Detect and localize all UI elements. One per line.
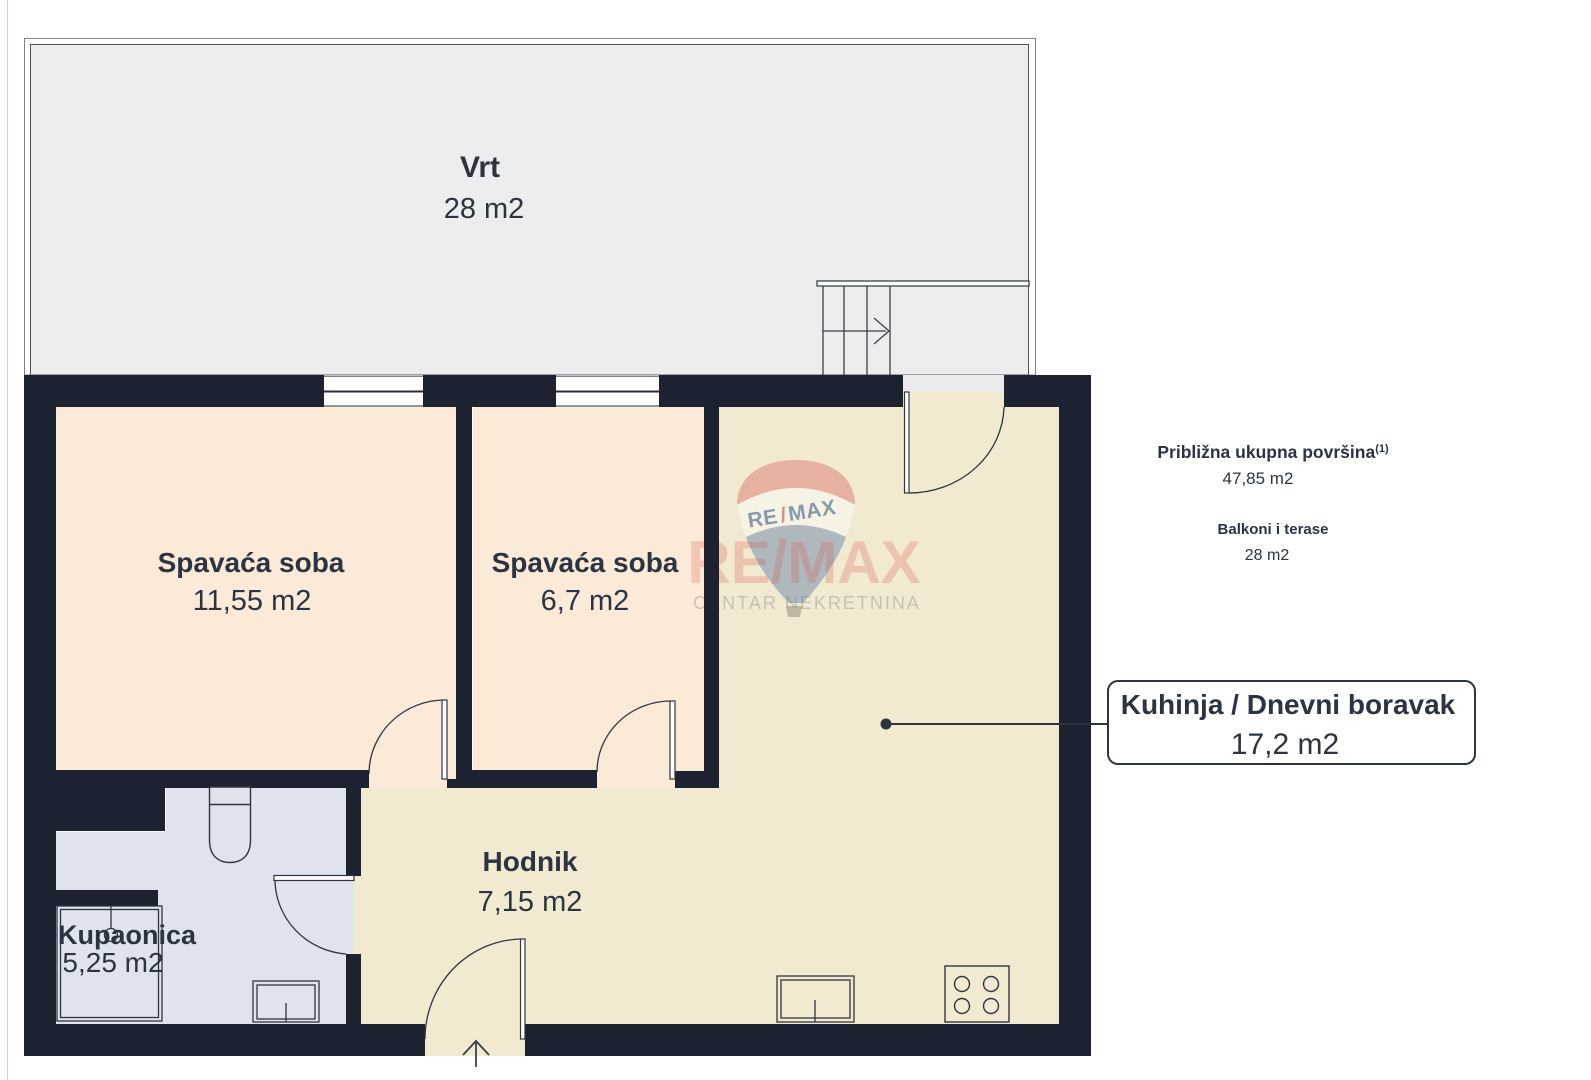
svg-text:Približna ukupna površina(1): Približna ukupna površina(1) [1157,442,1389,462]
svg-text:CENTAR NEKRETNINA: CENTAR NEKRETNINA [693,593,921,613]
svg-text:5,25 m2: 5,25 m2 [62,947,163,978]
svg-text:11,55 m2: 11,55 m2 [193,585,312,617]
svg-text:RE/MAX: RE/MAX [687,529,920,596]
svg-text:Spavaća soba: Spavaća soba [158,547,345,578]
svg-text:47,85 m2: 47,85 m2 [1223,469,1294,488]
svg-text:28 m2: 28 m2 [444,193,525,225]
svg-text:6,7 m2: 6,7 m2 [541,585,630,617]
svg-text:Vrt: Vrt [460,151,500,184]
svg-text:7,15 m2: 7,15 m2 [478,886,583,918]
svg-text:Hodnik: Hodnik [483,846,578,877]
svg-text:17,2 m2: 17,2 m2 [1231,728,1339,761]
svg-text:Kuhinja / Dnevni boravak: Kuhinja / Dnevni boravak [1121,689,1456,720]
svg-text:Balkoni i terase: Balkoni i terase [1218,521,1329,538]
svg-text:28 m2: 28 m2 [1245,547,1290,564]
svg-text:Kupaonica: Kupaonica [58,920,197,950]
svg-text:Spavaća soba: Spavaća soba [492,547,679,578]
